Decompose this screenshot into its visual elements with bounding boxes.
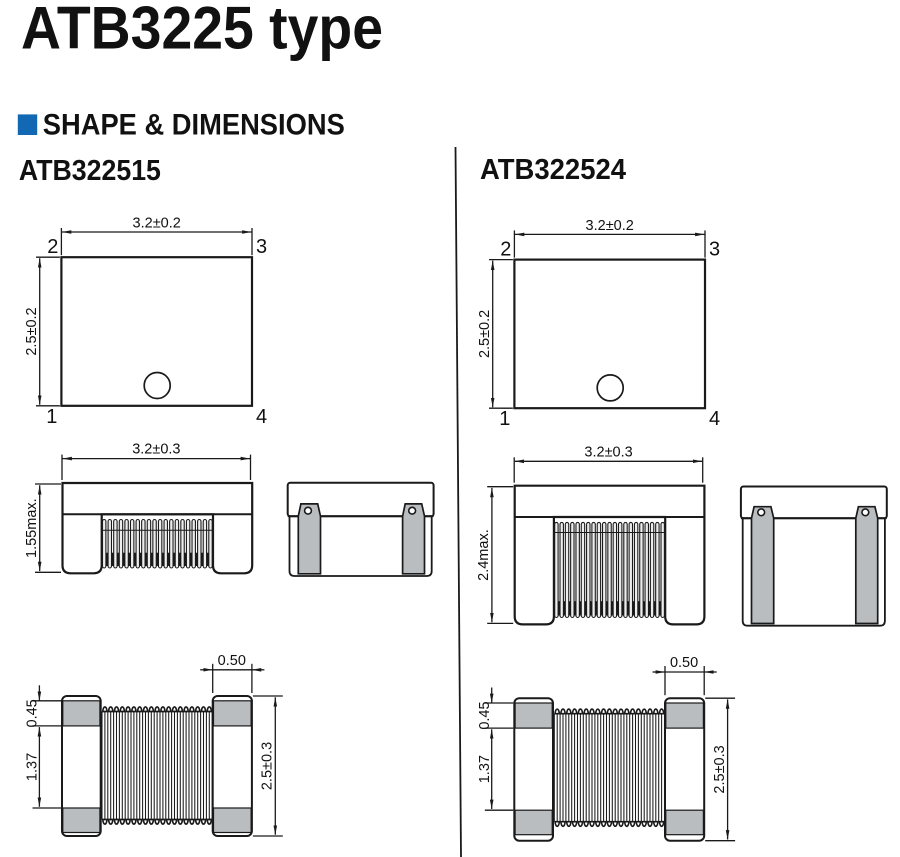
svg-text:ATB322524: ATB322524	[480, 154, 626, 186]
svg-text:1.37: 1.37	[477, 755, 493, 783]
svg-text:2.4max.: 2.4max.	[476, 529, 492, 581]
svg-text:3: 3	[256, 236, 267, 258]
svg-text:2.5±0.3: 2.5±0.3	[712, 745, 728, 793]
svg-text:0.45: 0.45	[25, 699, 41, 727]
svg-text:2.5±0.2: 2.5±0.2	[477, 310, 493, 358]
svg-text:2: 2	[47, 236, 58, 258]
svg-text:3.2±0.2: 3.2±0.2	[133, 216, 181, 232]
svg-text:2: 2	[500, 239, 511, 261]
svg-text:4: 4	[256, 406, 267, 428]
svg-text:3.2±0.3: 3.2±0.3	[132, 442, 180, 458]
svg-text:1: 1	[499, 408, 510, 430]
svg-text:3: 3	[709, 239, 720, 261]
svg-text:0.45: 0.45	[477, 701, 493, 729]
svg-text:0.50: 0.50	[670, 655, 698, 671]
svg-text:0.50: 0.50	[218, 653, 246, 669]
svg-text:1.55max.: 1.55max.	[24, 498, 40, 558]
svg-text:4: 4	[709, 408, 720, 430]
svg-text:1.37: 1.37	[25, 753, 41, 781]
svg-text:3.2±0.3: 3.2±0.3	[584, 444, 632, 460]
svg-text:3.2±0.2: 3.2±0.2	[586, 218, 634, 234]
svg-text:ATB3225 type: ATB3225 type	[21, 0, 383, 62]
svg-text:SHAPE & DIMENSIONS: SHAPE & DIMENSIONS	[43, 108, 345, 141]
svg-text:2.5±0.3: 2.5±0.3	[260, 742, 276, 790]
svg-text:1: 1	[46, 406, 57, 428]
svg-text:ATB322515: ATB322515	[19, 155, 161, 187]
svg-text:2.5±0.2: 2.5±0.2	[24, 307, 40, 355]
